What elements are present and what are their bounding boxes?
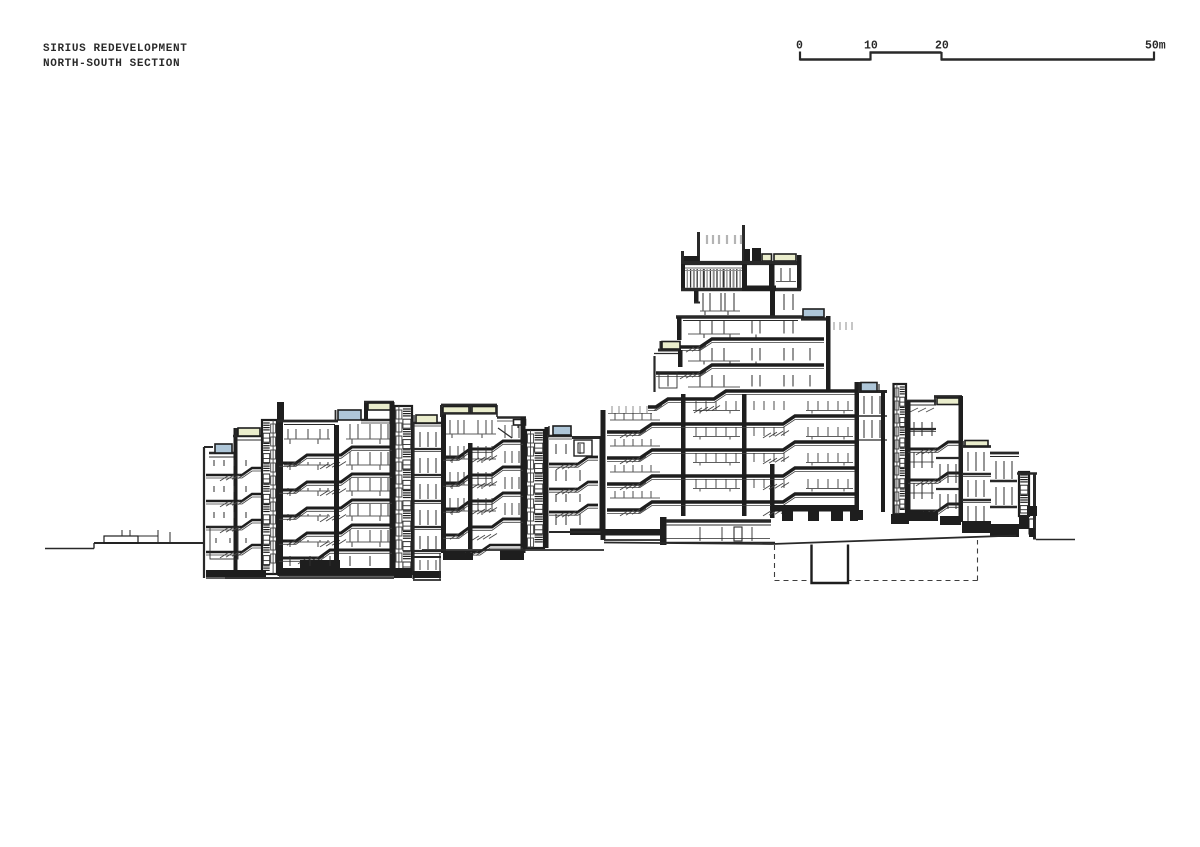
svg-text:0: 0 (796, 40, 803, 53)
svg-text:10: 10 (864, 40, 878, 53)
svg-text:SIRIUS REDEVELOPMENT: SIRIUS REDEVELOPMENT (43, 43, 187, 55)
svg-text:NORTH-SOUTH SECTION: NORTH-SOUTH SECTION (43, 58, 180, 70)
svg-text:50m: 50m (1145, 40, 1166, 53)
svg-text:20: 20 (935, 40, 949, 53)
